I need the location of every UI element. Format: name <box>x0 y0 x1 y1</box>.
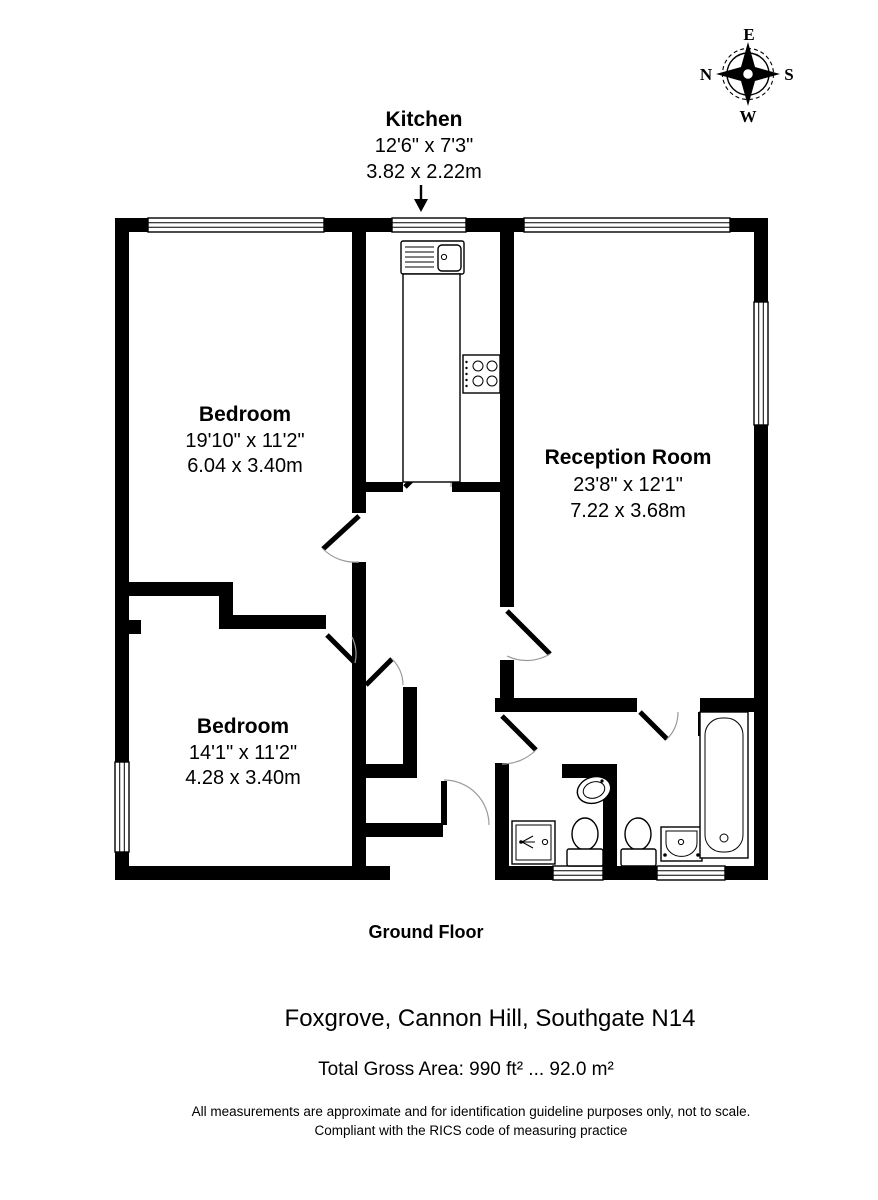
window-reception-north <box>524 218 730 232</box>
window-bathroom <box>657 866 725 880</box>
wall-bedroom2-north <box>219 615 326 629</box>
door-bedroom2 <box>327 635 356 663</box>
door-wc <box>502 716 536 764</box>
down-arrow-icon <box>414 185 428 212</box>
wall-hall-west <box>352 562 366 880</box>
bedroom1-imperial: 19'10" x 11'2" <box>185 430 304 452</box>
door-bedroom1 <box>323 516 359 562</box>
bathtub-icon <box>700 712 748 858</box>
toilet-icon <box>567 818 603 866</box>
floorplan-page: E S W N Kitchen 12'6" x 7'3" 3.82 x 2.22… <box>0 0 878 1200</box>
door-reception <box>507 611 550 661</box>
wall-wc-west <box>495 763 509 880</box>
door-entrance <box>441 780 489 825</box>
address-line: Foxgrove, Cannon Hill, Southgate N14 <box>285 1005 696 1032</box>
wall-bedroom1-south-upper <box>129 582 233 596</box>
sink-icon <box>401 241 464 274</box>
compass-hub <box>742 68 755 81</box>
bedroom2-label: Bedroom 14'1" x 11'2" 4.28 x 3.40m <box>185 715 301 789</box>
window-wc <box>553 866 603 880</box>
wall-bathroom-north-right <box>700 698 768 712</box>
window-reception-east <box>754 302 768 425</box>
wall-kitchen-south-left <box>352 482 403 492</box>
reception-metric: 7.22 x 3.68m <box>570 500 686 522</box>
compass-west-label: W <box>740 107 757 126</box>
window-bedroom1 <box>148 218 324 232</box>
door-bathroom <box>640 712 678 739</box>
compass-south-label: S <box>784 65 793 84</box>
reception-name: Reception Room <box>545 446 712 469</box>
wall-kitchen-south-right <box>452 482 503 492</box>
kitchen-fixtures <box>401 241 500 482</box>
wall-porch <box>366 823 443 837</box>
footer: Ground Floor Foxgrove, Cannon Hill, Sout… <box>192 922 751 1138</box>
compass-north-label: N <box>700 65 713 84</box>
wall-cupboard-east <box>403 687 417 778</box>
bedroom1-name: Bedroom <box>199 403 291 426</box>
wall-kitchen-east <box>500 232 514 607</box>
compass-east-label: E <box>743 25 754 44</box>
compass-rose: E S W N <box>700 25 794 126</box>
bedroom2-name: Bedroom <box>197 715 289 738</box>
kitchen-metric: 3.82 x 2.22m <box>366 161 482 183</box>
wall-bathroom-north-left <box>495 698 637 712</box>
bedroom1-label: Bedroom 19'10" x 11'2" 6.04 x 3.40m <box>185 403 304 477</box>
hob-icon <box>463 355 500 393</box>
toilet2-icon <box>621 818 656 866</box>
bedroom2-metric: 4.28 x 3.40m <box>185 767 301 789</box>
wall-kitchen-west <box>352 232 366 513</box>
kitchen-counter <box>403 274 460 482</box>
bathroom-fixtures <box>512 712 748 866</box>
kitchen-name: Kitchen <box>385 108 462 131</box>
floorplan-drawing: E S W N Kitchen 12'6" x 7'3" 3.82 x 2.22… <box>0 0 878 1200</box>
window-bedroom2 <box>115 762 129 852</box>
floor-label: Ground Floor <box>369 922 484 942</box>
disclaimer-line2: Compliant with the RICS code of measurin… <box>315 1123 628 1138</box>
wall-pier-west <box>129 620 141 634</box>
wall-south-left <box>115 866 390 880</box>
bedroom2-imperial: 14'1" x 11'2" <box>189 742 297 764</box>
basin-icon <box>661 827 702 861</box>
total-area: Total Gross Area: 990 ft² ... 92.0 m² <box>318 1059 614 1080</box>
kitchen-imperial: 12'6" x 7'3" <box>375 135 474 157</box>
reception-label: Reception Room 23'8" x 12'1" 7.22 x 3.68… <box>545 446 712 522</box>
wall-south-right <box>495 866 768 880</box>
window-kitchen <box>392 218 466 232</box>
kitchen-callout: Kitchen 12'6" x 7'3" 3.82 x 2.22m <box>366 108 482 212</box>
door-cupboard <box>366 659 403 685</box>
disclaimer-line1: All measurements are approximate and for… <box>192 1104 751 1119</box>
reception-imperial: 23'8" x 12'1" <box>573 474 683 496</box>
shower-icon <box>512 821 555 864</box>
bedroom1-metric: 6.04 x 3.40m <box>187 455 303 477</box>
